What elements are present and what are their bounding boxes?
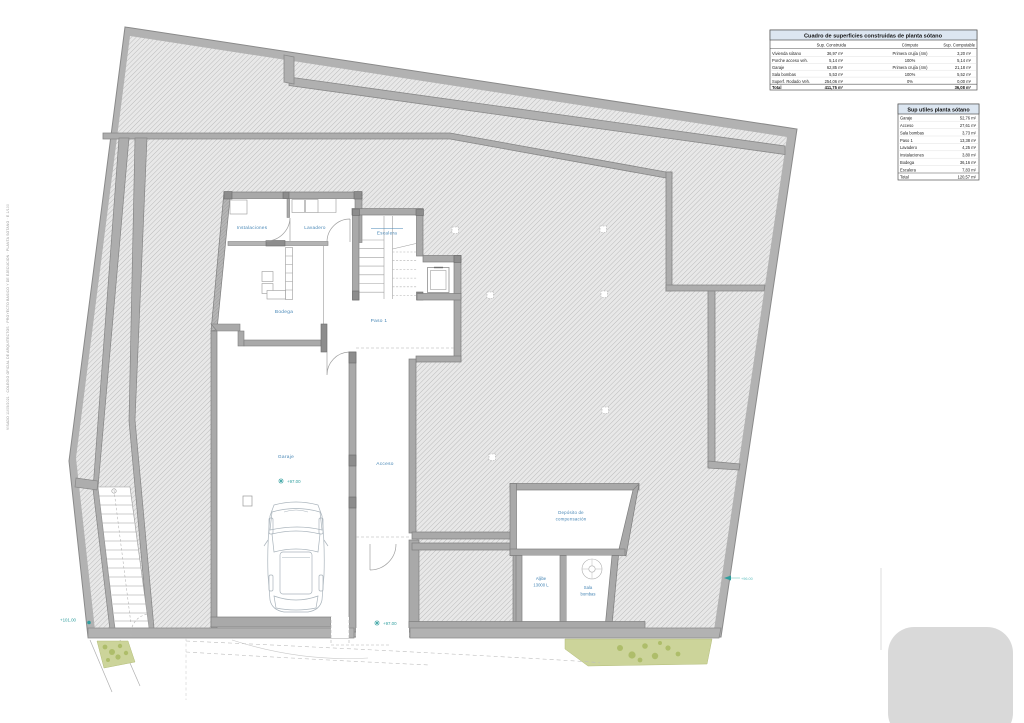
svg-text:36,08 m²: 36,08 m² — [955, 85, 972, 90]
svg-text:7,83 m²: 7,83 m² — [962, 167, 977, 172]
svg-text:Sala bombas: Sala bombas — [772, 72, 796, 77]
svg-text:36,97 m²: 36,97 m² — [827, 51, 844, 56]
svg-text:Cómputo: Cómputo — [902, 42, 919, 47]
svg-text:254,06 m²: 254,06 m² — [825, 79, 844, 84]
svg-text:100%: 100% — [905, 58, 916, 63]
svg-text:36,16 m²: 36,16 m² — [960, 160, 977, 165]
svg-text:100%: 100% — [905, 72, 916, 77]
svg-text:bombas: bombas — [581, 592, 596, 597]
svg-text:5,14 m²: 5,14 m² — [957, 58, 972, 63]
svg-text:Superf. Rodado Veh.: Superf. Rodado Veh. — [772, 79, 810, 84]
svg-text:Escalera: Escalera — [377, 231, 397, 236]
svg-text:5,52 m²: 5,52 m² — [957, 72, 972, 77]
svg-text:27,61 m²: 27,61 m² — [960, 123, 977, 128]
svg-text:VISADO 11/05/2021 · COLEGIO OF: VISADO 11/05/2021 · COLEGIO OFICIAL DE A… — [6, 204, 10, 430]
svg-text:Garaje: Garaje — [278, 454, 294, 460]
svg-text:Aljibe: Aljibe — [536, 576, 547, 581]
svg-text:Primera crujía (4m): Primera crujía (4m) — [892, 51, 928, 56]
svg-text:Total: Total — [772, 85, 781, 90]
svg-text:Bodega: Bodega — [275, 309, 293, 315]
svg-text:3,80 m²: 3,80 m² — [962, 153, 977, 158]
svg-text:Sup utiles planta sótano: Sup utiles planta sótano — [907, 107, 970, 113]
svg-text:Bodega: Bodega — [900, 160, 915, 165]
svg-text:Paso 1: Paso 1 — [900, 138, 913, 143]
svg-text:Lavadero: Lavadero — [304, 225, 326, 230]
svg-text:21,18 m²: 21,18 m² — [955, 65, 972, 70]
svg-text:Sala bombas: Sala bombas — [900, 130, 924, 135]
svg-text:411,75 m²: 411,75 m² — [825, 85, 844, 90]
svg-text:Depósito de: Depósito de — [558, 510, 584, 515]
svg-text:+101.00: +101.00 — [60, 618, 77, 623]
svg-text:Instalaciones: Instalaciones — [237, 225, 268, 230]
svg-text:+97.00: +97.00 — [383, 621, 397, 626]
svg-text:5,14 m²: 5,14 m² — [829, 58, 844, 63]
svg-text:Primera crujía (4m): Primera crujía (4m) — [892, 65, 928, 70]
svg-text:Cuadro de superficies construi: Cuadro de superficies construidas de pla… — [804, 33, 943, 39]
svg-text:Sup. Construida: Sup. Construida — [817, 42, 847, 47]
svg-text:+97.00: +97.00 — [287, 479, 301, 484]
svg-text:Lavadero: Lavadero — [900, 145, 918, 150]
svg-text:Acceso: Acceso — [376, 461, 394, 467]
svg-text:Vivienda sótano: Vivienda sótano — [772, 51, 802, 56]
svg-text:120,57 m²: 120,57 m² — [958, 175, 977, 180]
svg-text:3,73 m²: 3,73 m² — [962, 130, 977, 135]
svg-text:Paso 1: Paso 1 — [371, 318, 388, 324]
svg-text:4,25 m²: 4,25 m² — [962, 145, 977, 150]
svg-text:Instalaciones: Instalaciones — [900, 153, 924, 158]
svg-text:Acceso: Acceso — [900, 123, 914, 128]
svg-text:Porche acceso veh.: Porche acceso veh. — [772, 58, 808, 63]
svg-text:+96.00: +96.00 — [741, 577, 753, 581]
svg-text:5,53 m²: 5,53 m² — [829, 72, 844, 77]
svg-text:52,76 m²: 52,76 m² — [960, 116, 977, 121]
svg-text:13,38 m²: 13,38 m² — [960, 138, 977, 143]
svg-text:Escalera: Escalera — [900, 167, 917, 172]
svg-text:Total: Total — [900, 175, 909, 180]
svg-text:Garaje: Garaje — [772, 65, 785, 70]
svg-text:Garaje: Garaje — [900, 116, 913, 121]
svg-text:compensación: compensación — [556, 517, 587, 522]
svg-text:3,20 m²: 3,20 m² — [957, 51, 972, 56]
svg-text:Sup. Computable: Sup. Computable — [943, 42, 975, 47]
svg-text:13000 L: 13000 L — [533, 583, 549, 588]
svg-text:Sala: Sala — [584, 585, 593, 590]
svg-text:0,00 m²: 0,00 m² — [957, 79, 972, 84]
svg-text:62,85 m²: 62,85 m² — [827, 65, 844, 70]
svg-text:0%: 0% — [907, 79, 913, 84]
